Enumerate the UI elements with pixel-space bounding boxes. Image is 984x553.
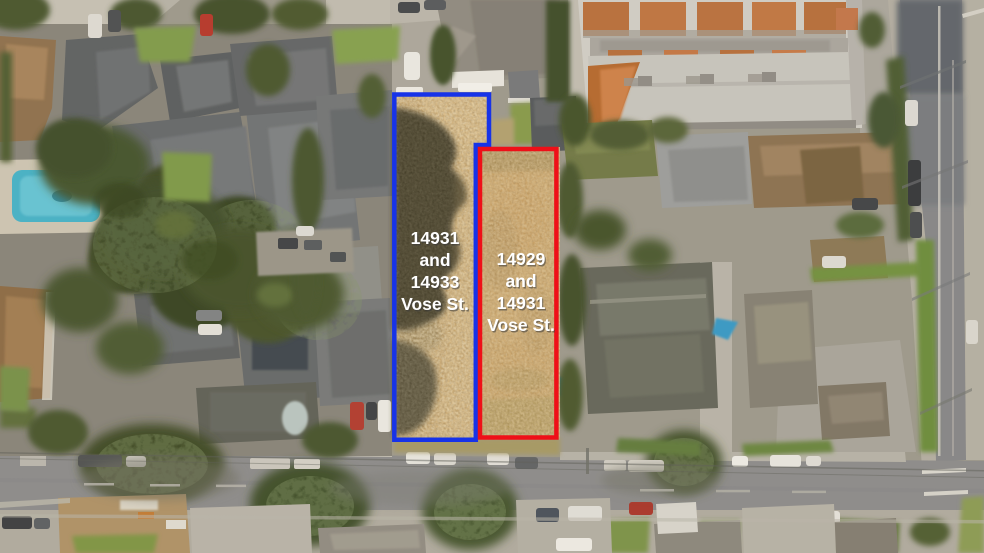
svg-text:Vose St.: Vose St. bbox=[487, 315, 555, 335]
svg-text:14933: 14933 bbox=[411, 272, 460, 292]
svg-text:14931: 14931 bbox=[497, 293, 546, 313]
svg-text:and: and bbox=[505, 271, 536, 291]
svg-text:and: and bbox=[419, 250, 450, 270]
svg-text:14931: 14931 bbox=[411, 228, 460, 248]
svg-text:14929: 14929 bbox=[497, 249, 546, 269]
svg-text:Vose St.: Vose St. bbox=[401, 294, 469, 314]
